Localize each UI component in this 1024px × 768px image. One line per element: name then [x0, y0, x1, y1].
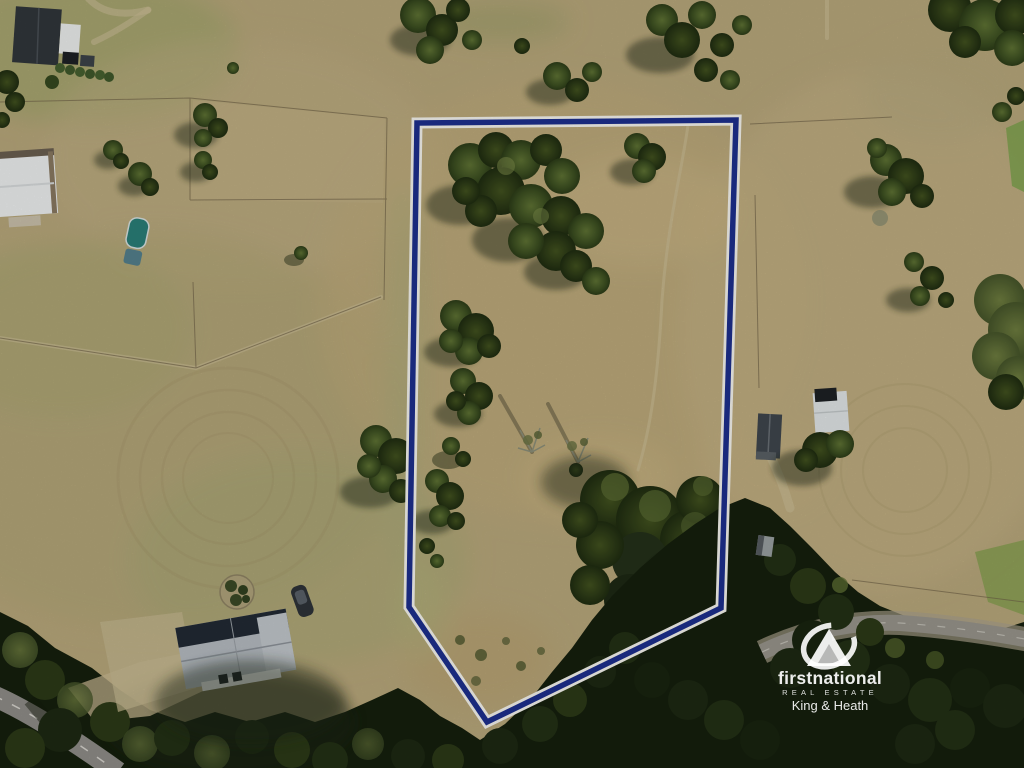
aerial-photo-stage: firstnational REAL ESTATE King & Heath — [0, 0, 1024, 768]
watermark-brand-text: firstnational — [778, 668, 882, 688]
aerial-photo: firstnational REAL ESTATE King & Heath — [0, 0, 1024, 768]
watermark-tagline-text: REAL ESTATE — [782, 688, 878, 697]
watermark-agency-text: King & Heath — [792, 698, 869, 713]
photo-grain — [0, 0, 1024, 768]
